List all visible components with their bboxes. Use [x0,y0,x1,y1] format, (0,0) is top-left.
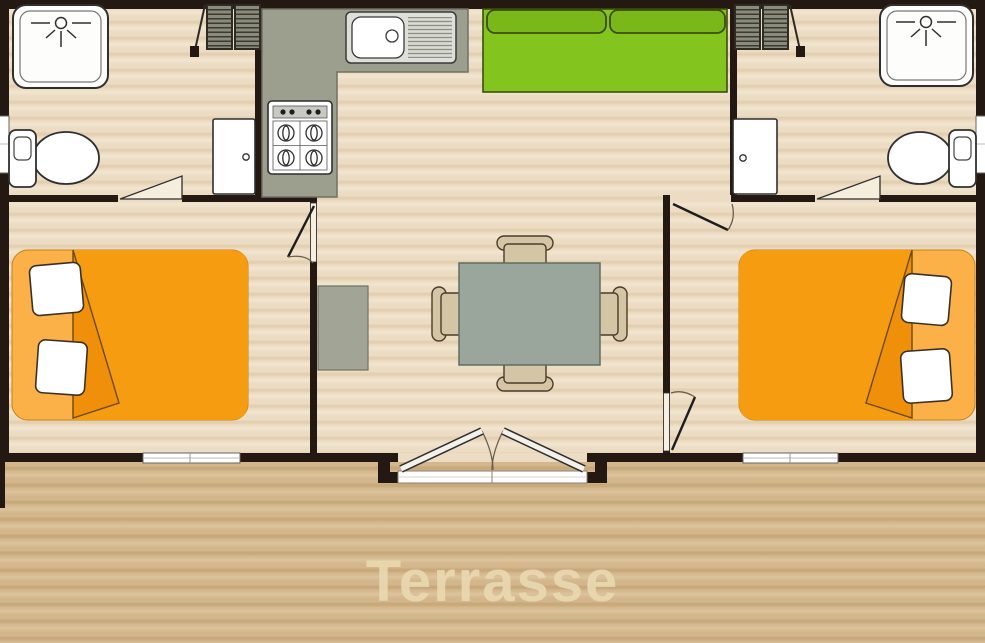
louver-window-left-opening [190,5,205,57]
dining-table [459,263,600,365]
sink-drainer [408,17,452,58]
toilet-left [9,130,99,187]
sofa-cushion [610,10,725,33]
door-handle [740,155,746,161]
window-bottom-left [143,453,240,463]
kitchen-sink [346,12,456,63]
sink-drain-hole [386,30,398,42]
door-bath-right [733,119,777,194]
gas-hob [268,101,332,174]
door-handle [243,154,249,160]
sofa [483,9,727,92]
floorplan: Terrasse [0,0,985,643]
door-bedroom-right-top [673,204,733,230]
pillow [29,262,84,316]
doorway-bedroom-right-top [670,195,731,202]
louver-window-right-opening [790,5,805,57]
entrance-jamb-right [587,453,607,483]
pillow [900,348,953,403]
door-swing-bath-left [120,176,182,199]
window-left-wall [0,116,9,173]
shower-left [13,5,108,88]
door-bath-left [213,119,255,194]
door-bedroom-right-bottom [671,392,695,450]
toilet-bowl [33,132,99,184]
bed-left [12,250,248,420]
toilet-bowl [888,132,952,184]
entrance-jamb-left [378,453,398,483]
doorway-bedroom-right-bottom [664,393,670,451]
pillow [35,339,88,395]
window-bottom-right [743,453,838,463]
window-right-wall [976,116,985,173]
fixtures-layer [0,0,985,643]
side-table [318,286,368,370]
sofa-cushion [487,10,606,33]
toilet-right [888,130,976,187]
bed-right [739,250,975,420]
pillow [901,273,952,326]
shower-right [880,5,973,86]
door-swing-bath-right [817,176,880,199]
